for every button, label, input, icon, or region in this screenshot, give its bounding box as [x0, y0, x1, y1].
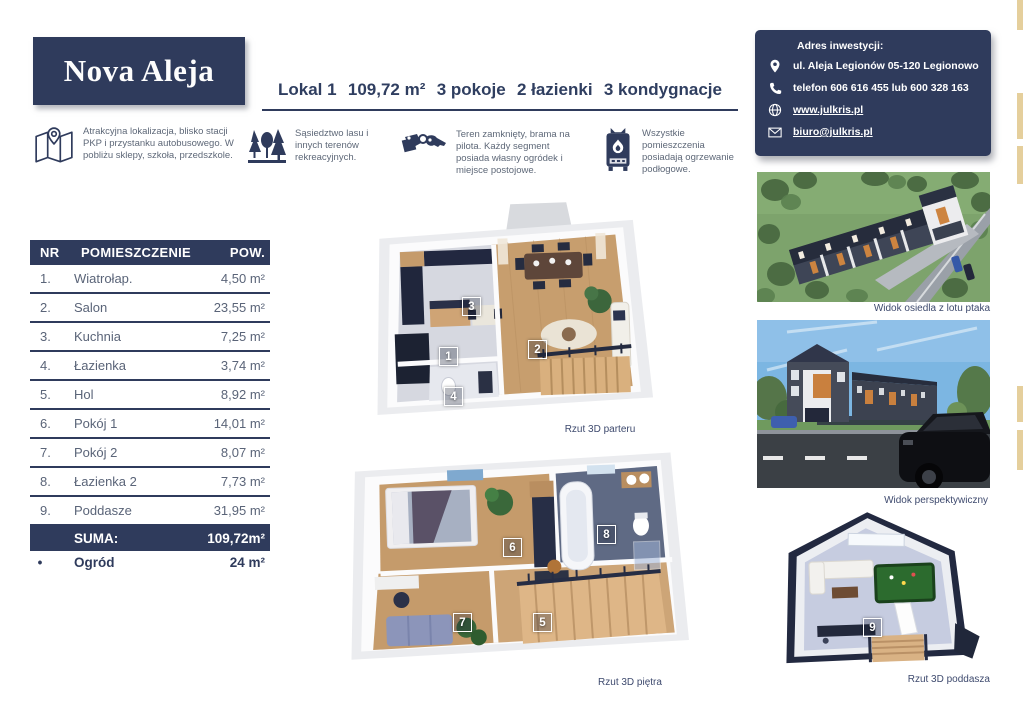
gold-edge-strip — [1017, 0, 1023, 30]
row-nr: 2. — [30, 300, 74, 315]
gold-edge-strip — [1017, 386, 1023, 422]
room-label: 3 — [462, 297, 481, 316]
rooms-table: NR POMIESZCZENIE POW. 1.Wiatrołap.4,50 m… — [30, 240, 270, 574]
table-row: 9.Poddasze31,95 m² — [30, 497, 270, 526]
caption-perspective: Widok perspektywiczny — [818, 495, 988, 506]
row-nr: 4. — [30, 358, 74, 373]
table-row: 1.Wiatrołap.4,50 m² — [30, 265, 270, 294]
contact-address-row: ul. Aleja Legionów 05-120 Legionowo — [767, 58, 981, 74]
col-room: POMIESZCZENIE — [74, 245, 198, 260]
contact-website-link[interactable]: www.julkris.pl — [793, 104, 863, 116]
unit-area: 109,72 m² — [348, 80, 426, 100]
room-label: 9 — [863, 618, 882, 637]
unit-rooms: 3 pokoje — [437, 80, 506, 100]
row-nr: 6. — [30, 416, 74, 431]
aerial-view-image — [757, 172, 990, 302]
room-label: 8 — [597, 525, 616, 544]
row-name: Wiatrołap. — [74, 271, 198, 286]
row-area: 7,73 m² — [198, 474, 270, 489]
row-name: Pokój 1 — [74, 416, 198, 431]
col-area: POW. — [198, 245, 270, 260]
row-nr: 1. — [30, 271, 74, 286]
floorplan-ground: 1 2 3 4 — [368, 202, 668, 424]
garden-value: 24 m² — [198, 555, 270, 570]
unit-floors: 3 kondygnacje — [604, 80, 722, 100]
row-name: Łazienka 2 — [74, 474, 198, 489]
feature-text: Atrakcyjna lokalizacja, blisko stacji PK… — [83, 126, 245, 162]
contact-address: ul. Aleja Legionów 05-120 Legionowo — [793, 60, 979, 72]
keys-icon — [400, 129, 448, 168]
rooms-table-header: NR POMIESZCZENIE POW. — [30, 240, 270, 265]
unit-bathrooms: 2 łazienki — [517, 80, 593, 100]
table-garden-row: • Ogród 24 m² — [30, 551, 270, 574]
row-area: 8,07 m² — [198, 445, 270, 460]
row-area: 4,50 m² — [198, 271, 270, 286]
map-icon — [33, 126, 75, 173]
row-area: 14,01 m² — [198, 416, 270, 431]
garden-bullet: • — [30, 555, 50, 570]
location-pin-icon — [767, 58, 783, 74]
room-label: 2 — [528, 340, 547, 359]
flyer-page: Nova Aleja Lokal 1 109,72 m² 3 pokoje 2 … — [0, 0, 1024, 724]
row-name: Salon — [74, 300, 198, 315]
contact-phone: telefon 606 616 455 lub 600 328 163 — [793, 82, 969, 94]
row-area: 23,55 m² — [198, 300, 270, 315]
contact-website-row: www.julkris.pl — [767, 102, 981, 118]
table-row: 2.Salon23,55 m² — [30, 294, 270, 323]
row-area: 8,92 m² — [198, 387, 270, 402]
contact-email-link[interactable]: biuro@julkris.pl — [793, 126, 873, 138]
table-row: 7.Pokój 28,07 m² — [30, 439, 270, 468]
row-name: Poddasze — [74, 503, 198, 518]
row-nr: 9. — [30, 503, 74, 518]
brand-logo: Nova Aleja — [33, 37, 245, 105]
perspective-view-image — [757, 320, 990, 488]
phone-icon — [767, 80, 783, 96]
unit-name: Lokal 1 — [278, 80, 337, 100]
room-label: 7 — [453, 613, 472, 632]
row-name: Pokój 2 — [74, 445, 198, 460]
gold-edge-strip — [1017, 146, 1023, 184]
feature-location: Atrakcyjna lokalizacja, blisko stacji PK… — [33, 126, 245, 173]
photo-perspective — [757, 320, 990, 488]
feature-text: Sąsiedztwo lasu i innych terenów rekreac… — [295, 128, 377, 164]
row-nr: 7. — [30, 445, 74, 460]
row-nr: 3. — [30, 329, 74, 344]
floorplan-attic: 9 — [758, 508, 990, 676]
row-area: 7,25 m² — [198, 329, 270, 344]
row-nr: 5. — [30, 387, 74, 402]
sum-label: SUMA: — [74, 531, 198, 546]
contact-card: Adres inwestycji: ul. Aleja Legionów 05-… — [755, 30, 991, 156]
boiler-icon — [602, 128, 634, 177]
caption-attic-plan: Rzut 3D poddasza — [820, 674, 990, 685]
floorplan-first: 5 6 7 8 — [342, 438, 690, 676]
feature-forest: Sąsiedztwo lasu i innych terenów rekreac… — [247, 128, 377, 171]
globe-icon — [767, 102, 783, 118]
table-row: 6.Pokój 114,01 m² — [30, 410, 270, 439]
table-row: 5.Hol8,92 m² — [30, 381, 270, 410]
table-row: 8.Łazienka 27,73 m² — [30, 468, 270, 497]
room-label: 1 — [439, 347, 458, 366]
table-row: 3.Kuchnia7,25 m² — [30, 323, 270, 352]
garden-label: Ogród — [50, 555, 198, 570]
row-name: Hol — [74, 387, 198, 402]
contact-email-row: biuro@julkris.pl — [767, 124, 981, 140]
caption-aerial: Widok osiedla z lotu ptaka — [818, 303, 990, 314]
contact-heading: Adres inwestycji: — [797, 40, 981, 52]
feature-heating: Wszystkie pomieszczenia posiadają ogrzew… — [602, 128, 747, 177]
sum-value: 109,72m² — [198, 531, 270, 546]
photo-aerial — [757, 172, 990, 302]
row-area: 31,95 m² — [198, 503, 270, 518]
gold-edge-strip — [1017, 430, 1023, 470]
brand-name: Nova Aleja — [64, 53, 215, 89]
row-name: Łazienka — [74, 358, 198, 373]
floorplan-ground-image — [368, 202, 668, 424]
row-name: Kuchnia — [74, 329, 198, 344]
floorplan-attic-image — [758, 508, 990, 676]
contact-phone-row: telefon 606 616 455 lub 600 328 163 — [767, 80, 981, 96]
feature-text: Teren zamknięty, brama na pilota. Każdy … — [456, 129, 585, 178]
row-nr: 8. — [30, 474, 74, 489]
caption-first-plan: Rzut 3D piętra — [560, 677, 700, 688]
caption-ground-plan: Rzut 3D parteru — [535, 424, 665, 435]
table-sum-row: SUMA: 109,72m² — [30, 526, 270, 551]
feature-text: Wszystkie pomieszczenia posiadają ogrzew… — [642, 128, 747, 177]
col-nr: NR — [30, 245, 74, 260]
unit-summary-bar: Lokal 1 109,72 m² 3 pokoje 2 łazienki 3 … — [262, 80, 738, 111]
table-row: 4.Łazienka3,74 m² — [30, 352, 270, 381]
envelope-icon — [767, 124, 783, 140]
room-label: 5 — [533, 613, 552, 632]
gold-edge-strip — [1017, 93, 1023, 139]
row-area: 3,74 m² — [198, 358, 270, 373]
trees-icon — [247, 128, 287, 171]
feature-gated: Teren zamknięty, brama na pilota. Każdy … — [400, 129, 585, 178]
room-label: 6 — [503, 538, 522, 557]
room-label: 4 — [444, 387, 463, 406]
floorplan-first-image — [342, 438, 690, 676]
